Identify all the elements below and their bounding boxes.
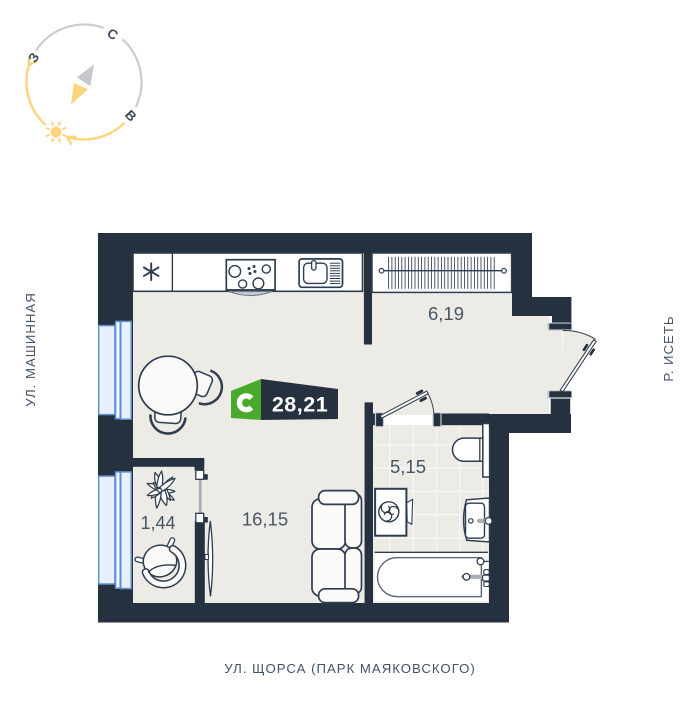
svg-text:5,15: 5,15 [390,456,426,477]
svg-text:28,21: 28,21 [272,393,328,417]
svg-text:УЛ. ЩОРСА (ПАРК МАЯКОВСКОГО): УЛ. ЩОРСА (ПАРК МАЯКОВСКОГО) [224,661,476,676]
svg-text:1,44: 1,44 [140,513,175,533]
svg-text:УЛ. МАШИННАЯ: УЛ. МАШИННАЯ [23,292,38,407]
svg-text:16,15: 16,15 [242,508,288,529]
svg-text:6,19: 6,19 [428,303,464,324]
svg-text:Р. ИСЕТЬ: Р. ИСЕТЬ [661,315,676,381]
